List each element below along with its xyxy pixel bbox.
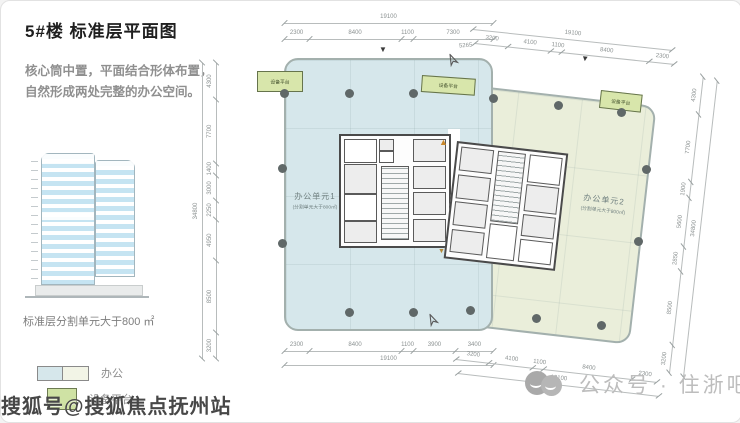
core-elevator [456,174,491,201]
office-unit-1-label: 办公单元1 (分割单元大于800㎡) [267,191,363,211]
dimension-label: 7700 [682,114,696,182]
dimension-label: 3000 [207,175,213,200]
core-room [344,164,376,195]
dimension-label: 1100 [533,359,545,366]
dimension-label: 34800 [193,63,199,359]
core-room [524,184,559,215]
core-elevator [459,147,494,174]
dimension-label: 4950 [207,219,213,261]
watermark-bottom-right: 公众号 · 住浙吧 [525,369,740,399]
structural-column [278,239,287,248]
dimension-chain: 34800 [194,63,206,359]
core-elevator [453,201,488,228]
dimension-label: 8500 [207,261,213,332]
office-unit-1-subtitle: (分割单元大于800㎡) [277,203,354,210]
core-elevator [413,166,445,189]
structural-column [345,89,354,98]
dimension-label: 8400 [309,342,401,348]
dimension-chain: 32008500495022503000140077004300 [208,63,220,359]
chat-bubble-icon [541,375,562,396]
structural-column [634,237,643,246]
core-elevator [413,192,445,215]
dimension-label: 1100 [551,42,563,49]
core-elevator [450,229,485,256]
dimension-label: 5265 [459,43,473,50]
dimension-label: 7700 [207,99,213,164]
equipment-platform-label: 设备平台 [611,97,631,106]
dimension-label: 2300 [284,342,309,348]
core-room [379,151,394,163]
core-room [344,139,376,163]
structural-column [532,314,541,323]
structural-column [409,308,418,317]
dimension-label: 4300 [207,63,213,99]
core-room [527,155,562,186]
dimension-label: 19100 [284,14,493,20]
structural-column [554,101,563,110]
core-right [444,141,569,271]
office-unit-1-name: 办公单元1 [267,191,363,202]
dimension-label: 2250 [207,201,213,220]
chat-bubbles-icon [525,371,569,397]
entrance-marker-icon: ▼ [379,46,387,54]
dimension-label: 1100 [401,30,413,36]
structural-column [345,308,354,317]
dimension-label: 3400 [456,342,493,348]
dimension-label: 2300 [650,52,675,60]
core-stair [381,166,409,241]
entrance-marker-icon: ▲ [439,138,448,147]
core-room [521,214,556,240]
entrance-marker-icon: ▼ [581,55,590,64]
dimension-chain: 2300840011007300 [284,31,493,43]
equipment-platform: 设备平台 [257,71,303,92]
entrance-marker-icon: ▼ [438,248,445,255]
watermark-bottom-left: 搜狐号@搜狐焦点抚州站 [1,390,232,419]
core-elevator [413,219,445,242]
dimension-chain: 19100 [284,15,493,27]
dimension-label: 2850 [672,246,681,271]
dimension-label: 2300 [284,30,309,36]
structural-column [466,306,475,315]
dimension-label: 3900 [413,342,456,348]
structural-column [409,89,418,98]
structural-column [617,108,626,117]
floor-plan: 设备平台 设备平台 设备平台 办公单元1 (分割单元大于800㎡) 办公单元2 … [1,1,740,422]
structural-column [642,165,651,174]
equipment-platform-label: 设备平台 [438,81,458,90]
watermark-right-text: 公众号 · 住浙吧 [579,369,740,399]
core-room [486,224,518,261]
structural-column [278,164,287,173]
core-room [379,139,394,151]
page: 5#楼 标准层平面图 核心筒中置，平面结合形体布置， 自然形成两处完整的办公空间… [0,0,740,423]
dimension-label: 8400 [309,30,401,36]
structural-column [489,94,498,103]
structural-column [597,321,606,330]
dimension-label: 3200 [207,332,213,359]
core-stair [490,151,526,224]
equipment-platform-label: 设备平台 [270,78,289,85]
core-room [344,221,376,243]
dimension-label: 1400 [207,164,213,176]
structural-column [280,89,289,98]
core-room [518,239,553,265]
dimension-label: 1100 [401,342,413,348]
